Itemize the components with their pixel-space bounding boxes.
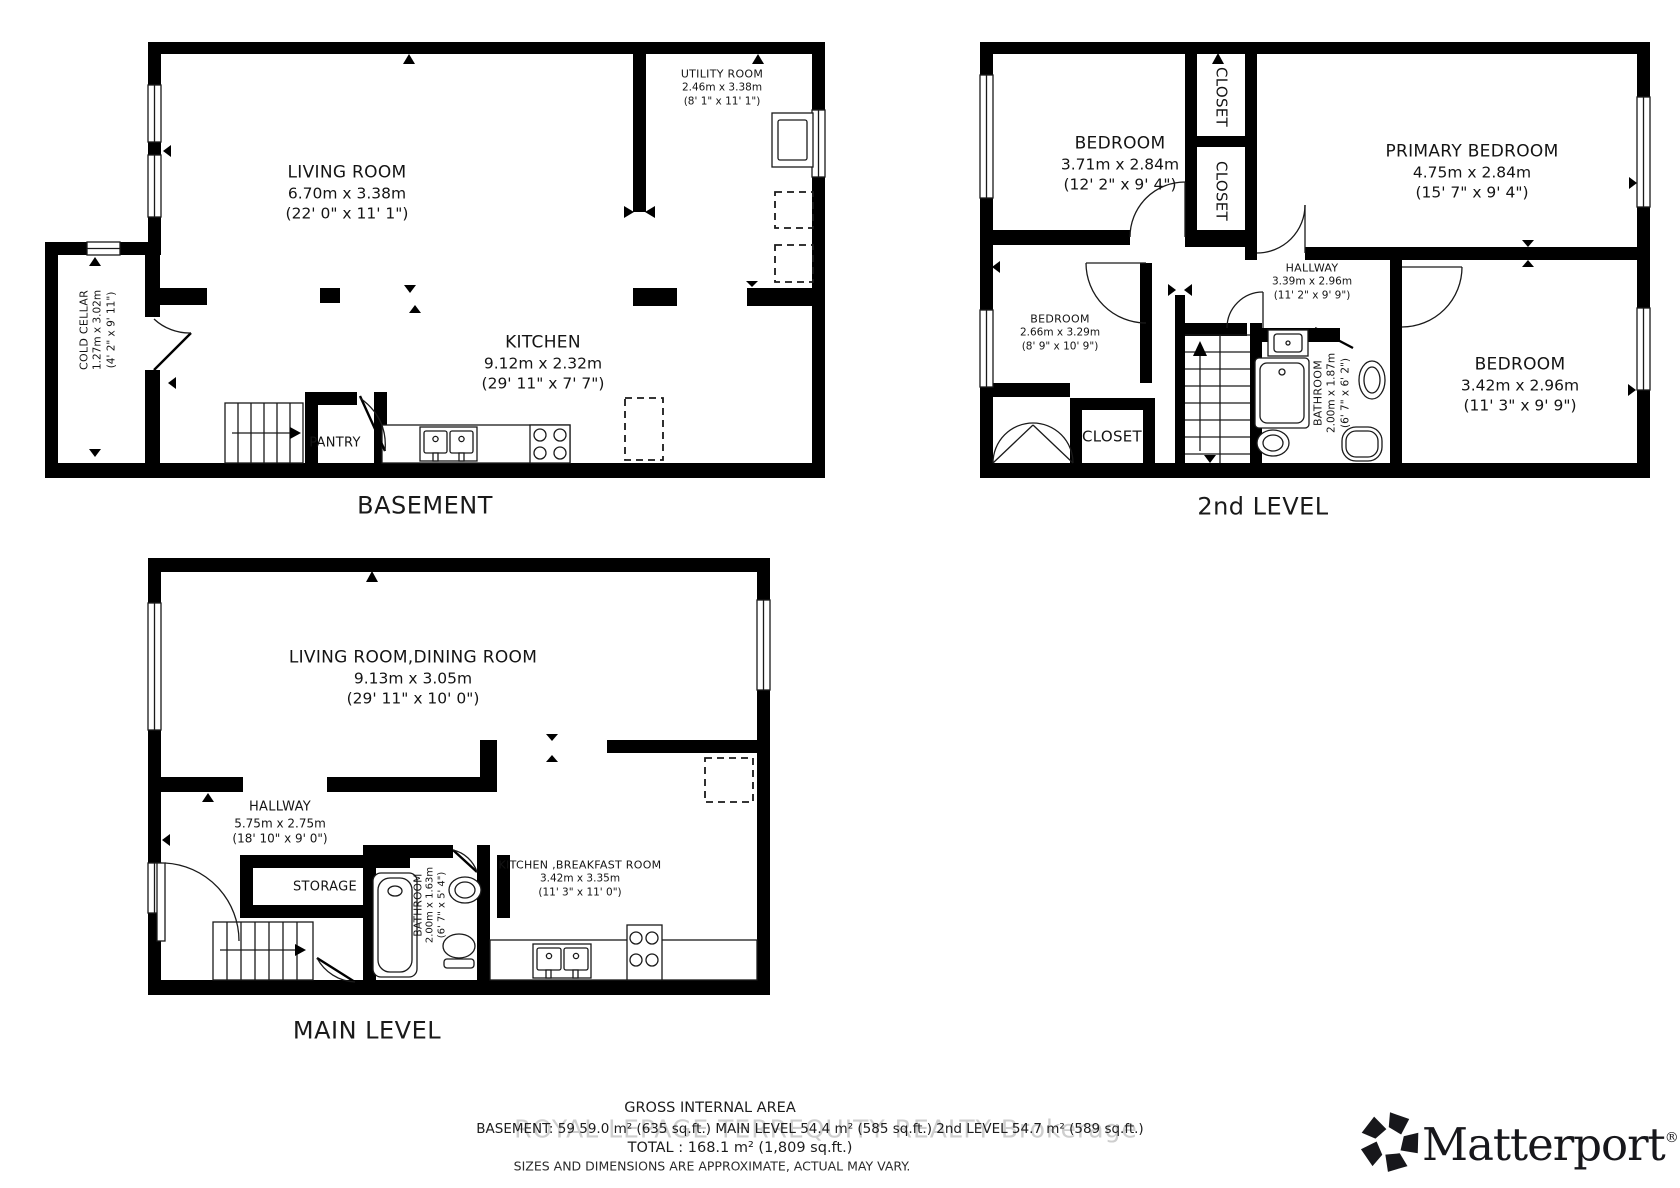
- stove: [530, 425, 570, 463]
- floor-plan-sheet: LIVING ROOM 6.70m x 3.38m (22' 0" x 11' …: [0, 0, 1680, 1188]
- room-dim-metric: 6.70m x 3.38m: [286, 184, 409, 204]
- stove: [627, 925, 662, 980]
- room-label-second-closet-upper: CLOSET: [1211, 67, 1230, 127]
- room-name: STORAGE: [293, 880, 357, 897]
- room-name: KITCHEN: [482, 332, 605, 354]
- room-dim-imperial: (6' 7" x 6' 2"): [1339, 353, 1352, 433]
- room-dim-metric: 2.46m x 3.38m: [681, 82, 763, 95]
- room-label-second-hallway: HALLWAY 3.39m x 2.96m (11' 2" x 9' 9"): [1272, 262, 1352, 303]
- room-label-basement-cold-cellar: COLD CELLAR 1.27m x 3.02m (4' 2" x 9' 11…: [78, 290, 119, 370]
- stairs: [213, 922, 313, 980]
- room-dim-metric: 2.00m x 1.87m: [1326, 353, 1339, 433]
- appliance-outline: [705, 758, 753, 802]
- room-dim-imperial: (11' 2" x 9' 9"): [1272, 289, 1352, 302]
- room-dim-metric: 9.12m x 2.32m: [482, 354, 605, 374]
- pedestal-sink: [449, 877, 481, 903]
- room-name: BEDROOM: [1461, 354, 1579, 376]
- room-label-second-bathroom: BATHROOM 2.00m x 1.87m (6' 7" x 6' 2"): [1312, 353, 1353, 433]
- room-name: UTILITY ROOM: [681, 68, 763, 82]
- bathtub: [373, 873, 417, 977]
- kitchen-counter: [490, 940, 757, 980]
- room-name: PRIMARY BEDROOM: [1385, 141, 1558, 163]
- room-name: BEDROOM: [1020, 313, 1100, 327]
- room-name: HALLWAY: [232, 799, 327, 816]
- room-label-second-bedroom-right: BEDROOM 3.42m x 2.96m (11' 3" x 9' 9"): [1461, 354, 1579, 415]
- room-label-second-bedroom-mid-left: BEDROOM 2.66m x 3.29m (8' 9" x 10' 9"): [1020, 313, 1100, 354]
- room-label-second-primary-bedroom: PRIMARY BEDROOM 4.75m x 2.84m (15' 7" x …: [1385, 141, 1558, 202]
- room-dim-imperial: (22' 0" x 11' 1"): [286, 204, 409, 224]
- door-swing-markers: [89, 54, 764, 457]
- room-name: COLD CELLAR: [78, 290, 92, 370]
- room-dim-imperial: (6' 7" x 5' 4"): [436, 867, 448, 943]
- room-dim-metric: 3.42m x 2.96m: [1461, 376, 1579, 396]
- shower: [1255, 358, 1309, 428]
- floor-label-main-level: MAIN LEVEL: [293, 1016, 441, 1047]
- room-name: HALLWAY: [1272, 262, 1352, 276]
- room-dim-imperial: (8' 9" x 10' 9"): [1020, 340, 1100, 353]
- matterport-pinwheel-icon: [1358, 1111, 1422, 1173]
- stairs: [1185, 335, 1250, 463]
- disclaimer: SIZES AND DIMENSIONS ARE APPROXIMATE, AC…: [514, 1159, 911, 1174]
- room-name: BATHROOM: [1312, 353, 1326, 433]
- gross-internal-area-title: GROSS INTERNAL AREA: [624, 1100, 796, 1116]
- room-name: LIVING ROOM,DINING ROOM: [289, 647, 537, 669]
- room-label-basement-kitchen: KITCHEN 9.12m x 2.32m (29' 11" x 7' 7"): [482, 332, 605, 393]
- room-label-basement-utility-room: UTILITY ROOM 2.46m x 3.38m (8' 1" x 11' …: [681, 68, 763, 109]
- room-label-main-bathroom: BATHROOM 2.00m x 1.63m (6' 7" x 5' 4"): [412, 867, 447, 943]
- room-name: CLOSET: [1082, 427, 1142, 446]
- room-dim-metric: 3.42m x 3.35m: [499, 873, 662, 886]
- toilet: [1257, 430, 1289, 456]
- room-dim-imperial: (11' 3" x 11' 0"): [499, 886, 662, 899]
- registered-mark: ®: [1665, 1130, 1679, 1146]
- room-name: BEDROOM: [1061, 133, 1179, 155]
- vanity-sink: [1268, 330, 1308, 356]
- sink: [533, 944, 591, 978]
- area-breakdown: BASEMENT: 59 59.0 m² (635 sq.ft.) MAIN L…: [476, 1121, 1143, 1137]
- room-dim-imperial: (8' 1" x 11' 1"): [681, 95, 763, 108]
- room-dim-imperial: (15' 7" x 9' 4"): [1385, 183, 1558, 203]
- room-dim-metric: 2.00m x 1.63m: [425, 867, 437, 943]
- windows: [87, 85, 825, 255]
- room-dim-imperial: (11' 3" x 9' 9"): [1461, 396, 1579, 416]
- matterport-wordmark: Matterport®: [1422, 1106, 1679, 1177]
- room-dim-metric: 3.71m x 2.84m: [1061, 155, 1179, 175]
- floor-label-basement: BASEMENT: [357, 491, 493, 522]
- matterport-logo: Matterport®: [1358, 1106, 1679, 1177]
- room-label-second-bedroom-top-left: BEDROOM 3.71m x 2.84m (12' 2" x 9' 4"): [1061, 133, 1179, 194]
- toilet: [443, 934, 475, 968]
- room-dim-metric: 4.75m x 2.84m: [1385, 163, 1558, 183]
- room-dim-imperial: (18' 10" x 9' 0"): [232, 831, 327, 846]
- room-name: CLOSET: [1211, 67, 1230, 127]
- room-label-second-closet-bottom: CLOSET: [1082, 427, 1142, 446]
- floor-label-second-level: 2nd LEVEL: [1197, 492, 1328, 523]
- area-total: TOTAL : 168.1 m² (1,809 sq.ft.): [628, 1140, 853, 1156]
- room-label-main-living-dining: LIVING ROOM,DINING ROOM 9.13m x 3.05m (2…: [289, 647, 537, 708]
- room-label-basement-living-room: LIVING ROOM 6.70m x 3.38m (22' 0" x 11' …: [286, 162, 409, 223]
- water-heater: [772, 113, 813, 167]
- room-name: KITCHEN ,BREAKFAST ROOM: [499, 859, 662, 873]
- room-dim-metric: 2.66m x 3.29m: [1020, 327, 1100, 340]
- room-dim-imperial: (29' 11" x 10' 0"): [289, 689, 537, 709]
- room-label-main-storage: STORAGE: [293, 880, 357, 897]
- room-dim-metric: 9.13m x 3.05m: [289, 669, 537, 689]
- room-dim-imperial: (29' 11" x 7' 7"): [482, 374, 605, 394]
- main-level-floor-plan: [140, 550, 780, 1010]
- sink: [420, 427, 477, 461]
- door: [154, 319, 385, 451]
- appliance-outline: [625, 192, 813, 460]
- room-dim-metric: 5.75m x 2.75m: [232, 816, 327, 831]
- room-dim-imperial: (12' 2" x 9' 4"): [1061, 175, 1179, 195]
- room-label-second-closet-lower: CLOSET: [1211, 161, 1230, 221]
- room-label-main-hallway: HALLWAY 5.75m x 2.75m (18' 10" x 9' 0"): [232, 799, 327, 846]
- room-dim-metric: 1.27m x 3.02m: [92, 290, 105, 370]
- room-dim-metric: 3.39m x 2.96m: [1272, 276, 1352, 289]
- stairs: [225, 403, 303, 463]
- room-name: CLOSET: [1211, 161, 1230, 221]
- room-name: BATHROOM: [412, 867, 424, 943]
- brand-name: Matterport: [1422, 1118, 1665, 1171]
- room-name: LIVING ROOM: [286, 162, 409, 184]
- room-label-main-kitchen-breakfast: KITCHEN ,BREAKFAST ROOM 3.42m x 3.35m (1…: [499, 859, 662, 900]
- room-name: PANTRY: [309, 436, 361, 453]
- room-dim-imperial: (4' 2" x 9' 11"): [105, 290, 118, 370]
- room-label-basement-pantry: PANTRY: [309, 436, 361, 453]
- pedestal-sink: [1359, 361, 1385, 399]
